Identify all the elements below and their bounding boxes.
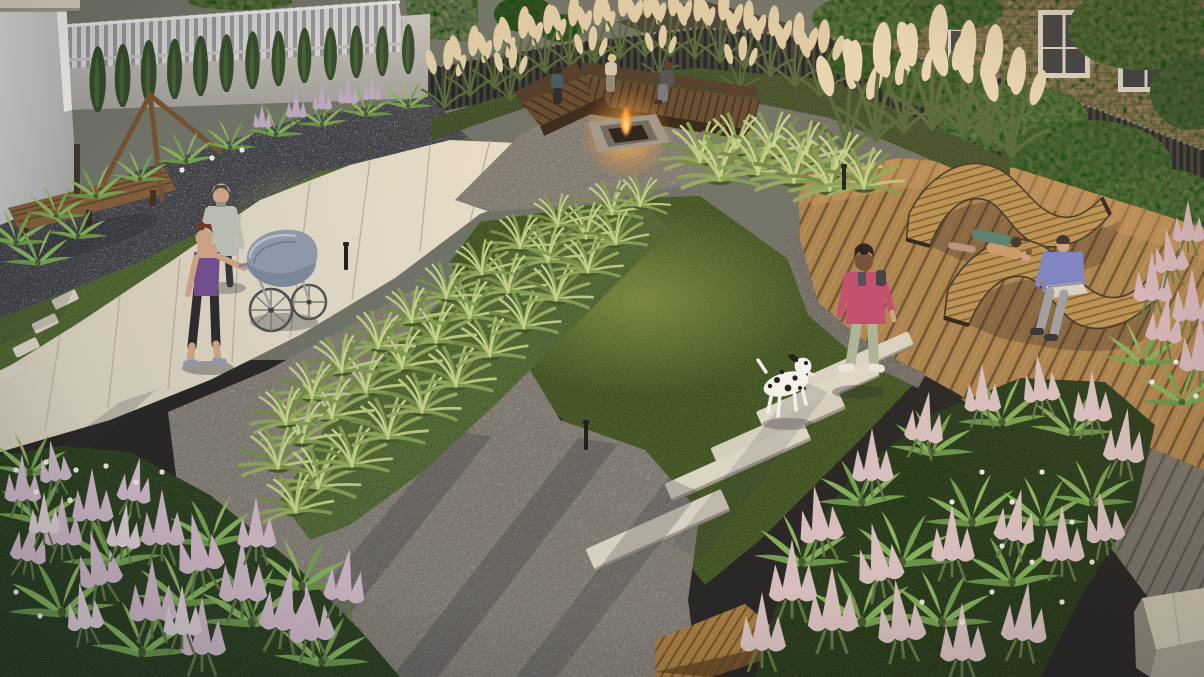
vignette-overlay [0,0,1204,677]
garden-scene-canvas [0,0,1204,677]
garden-render [0,0,1204,677]
